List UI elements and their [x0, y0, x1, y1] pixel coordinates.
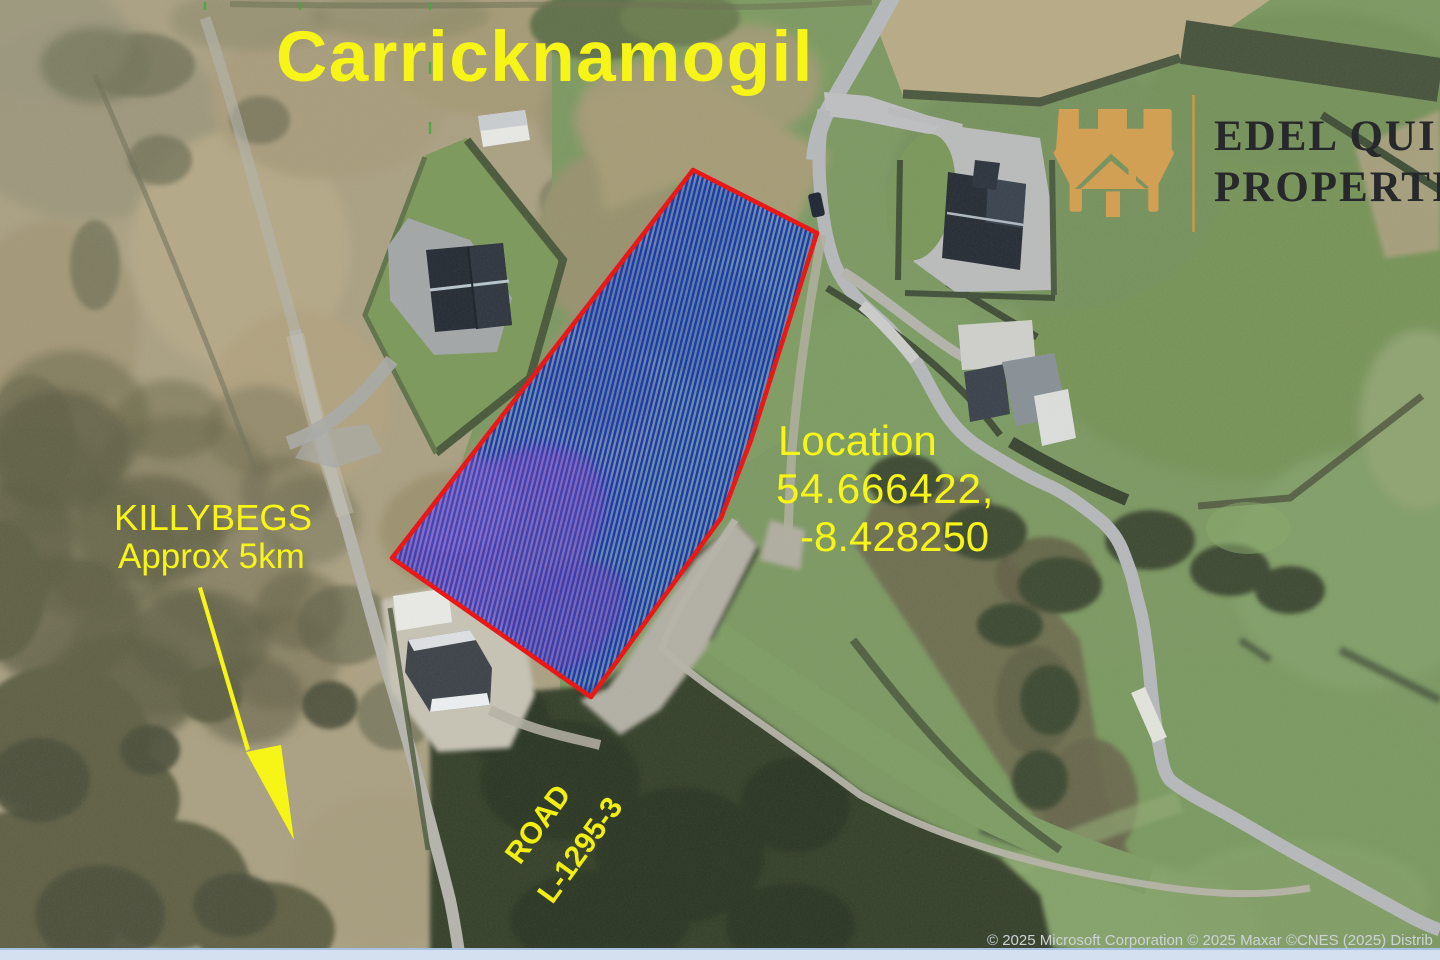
- svg-text:© 2025 Microsoft Corporation ©: © 2025 Microsoft Corporation © 2025 Maxa…: [987, 932, 1433, 949]
- svg-text:Location: Location: [778, 417, 937, 464]
- svg-text:EDEL QUI: EDEL QUI: [1214, 113, 1437, 160]
- svg-text:-8.428250: -8.428250: [800, 513, 989, 560]
- svg-text:54.666422,: 54.666422,: [776, 465, 994, 512]
- svg-text:Approx 5km: Approx 5km: [118, 537, 305, 576]
- svg-text:Carricknamogil: Carricknamogil: [276, 18, 814, 97]
- svg-text:PROPERTI: PROPERTI: [1214, 164, 1440, 211]
- svg-text:KILLYBEGS: KILLYBEGS: [114, 497, 312, 538]
